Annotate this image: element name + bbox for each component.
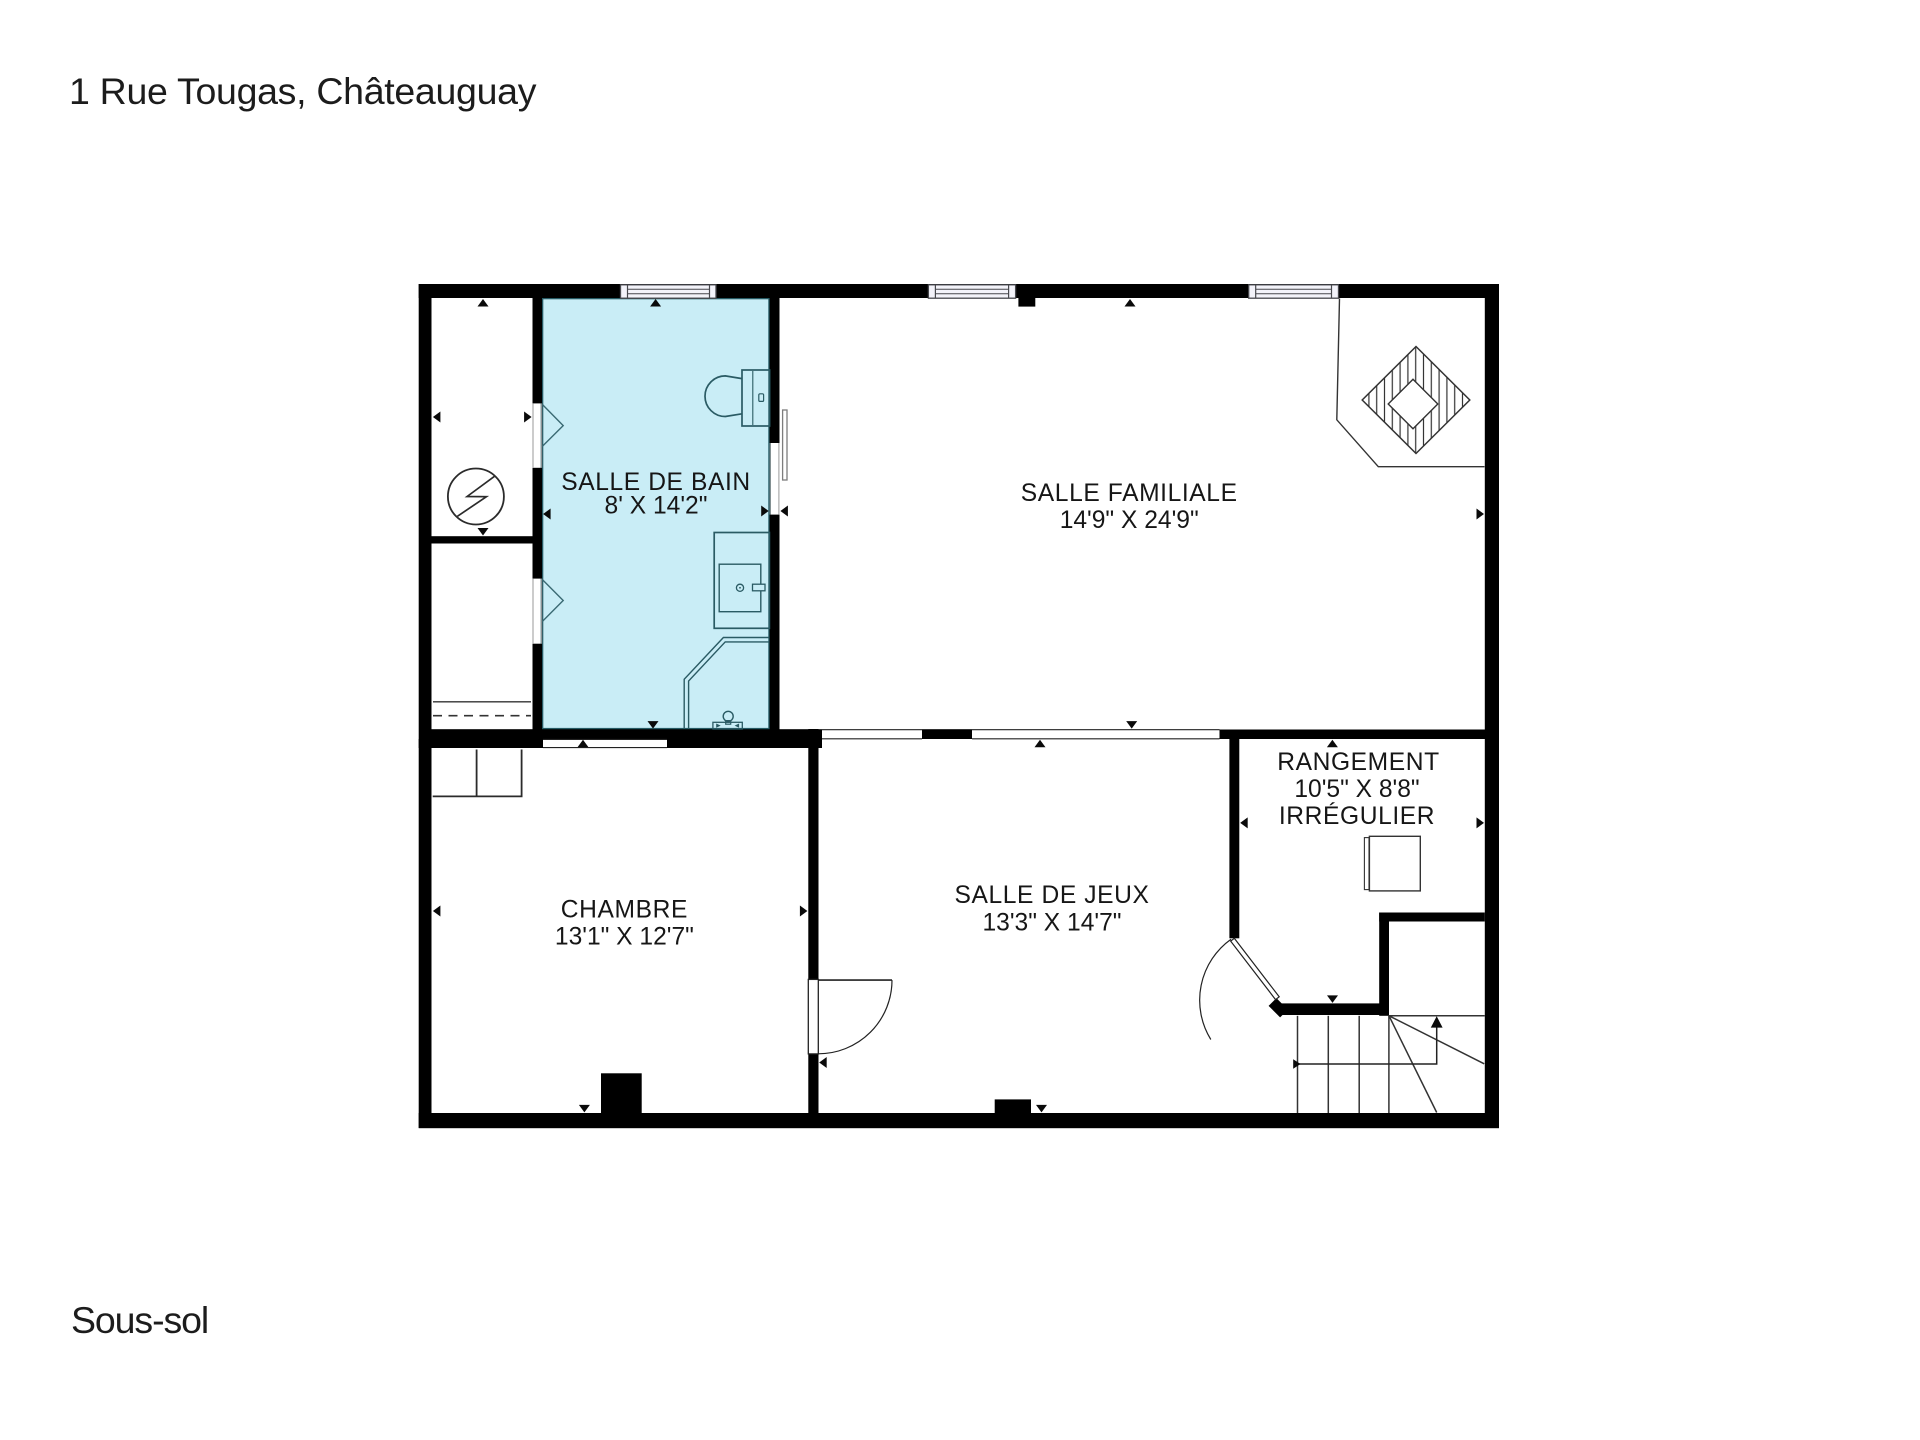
svg-text:13'3" X 14'7": 13'3" X 14'7" (983, 909, 1122, 936)
svg-text:14'9" X 24'9": 14'9" X 24'9" (1060, 507, 1199, 534)
svg-text:SALLE DE JEUX: SALLE DE JEUX (954, 882, 1149, 909)
svg-text:CHAMBRE: CHAMBRE (561, 897, 688, 924)
svg-text:IRRÉGULIER: IRRÉGULIER (1279, 803, 1435, 830)
svg-text:1 Rue Tougas, Châteauguay: 1 Rue Tougas, Châteauguay (69, 70, 537, 112)
svg-text:SALLE FAMILIALE: SALLE FAMILIALE (1021, 480, 1238, 507)
svg-text:10'5" X 8'8": 10'5" X 8'8" (1294, 776, 1419, 803)
svg-text:Sous-sol: Sous-sol (71, 1299, 208, 1341)
svg-text:8' X 14'2": 8' X 14'2" (605, 492, 708, 519)
svg-text:RANGEMENT: RANGEMENT (1277, 749, 1440, 776)
svg-text:13'1" X 12'7": 13'1" X 12'7" (555, 924, 694, 951)
